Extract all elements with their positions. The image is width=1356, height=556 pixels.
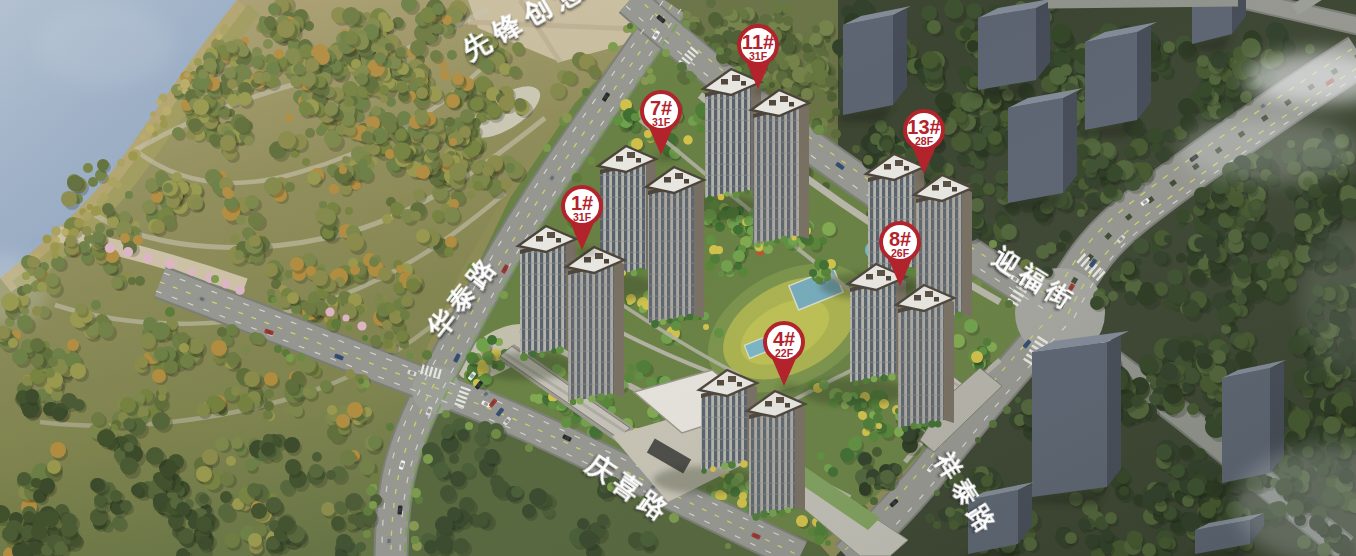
svg-text:28F: 28F [915,135,934,147]
svg-text:31F: 31F [652,116,671,128]
svg-text:31F: 31F [749,50,768,62]
svg-text:22F: 22F [775,347,794,359]
svg-text:26F: 26F [891,247,910,259]
svg-text:31F: 31F [573,211,592,223]
